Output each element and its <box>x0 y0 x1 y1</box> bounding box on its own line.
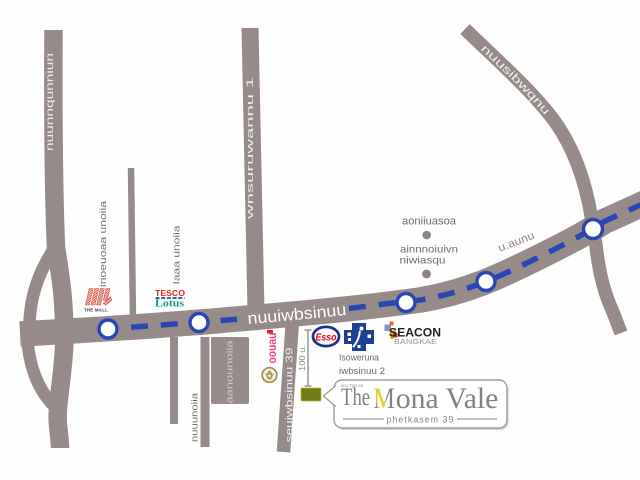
svg-text:inoeuoaa unoiia: inoeuoaa unoiia <box>98 200 109 287</box>
svg-text:TESCO: TESCO <box>155 288 185 298</box>
svg-text:Isoweruna: Isoweruna <box>339 353 379 363</box>
svg-text:ona Vale: ona Vale <box>396 382 499 415</box>
svg-text:100 u.: 100 u. <box>297 345 307 371</box>
svg-text:iwbsinuu 2: iwbsinuu 2 <box>339 366 385 376</box>
svg-text:nuuunoiia: nuuunoiia <box>190 392 201 442</box>
svg-text:aanounoiia: aanounoiia <box>225 341 235 404</box>
svg-text:wnsuruwannu 1: wnsuruwannu 1 <box>245 77 256 221</box>
svg-text:nuunnqunniun: nuunnqunniun <box>45 53 56 151</box>
svg-text:ainnnoiuivn: ainnnoiuivn <box>400 243 458 255</box>
svg-text:seuiwbsinuu 39: seuiwbsinuu 39 <box>284 347 296 442</box>
svg-text:Lotus: Lotus <box>155 299 184 310</box>
svg-text:Iaaa unoiia: Iaaa unoiia <box>172 225 183 285</box>
svg-text:The: The <box>341 382 370 410</box>
svg-text:niwiasqu: niwiasqu <box>400 255 446 267</box>
svg-text:BANGKAE: BANGKAE <box>394 339 437 346</box>
svg-text:THE MALL: THE MALL <box>84 308 108 313</box>
svg-text:phetkasem 39: phetkasem 39 <box>387 415 455 426</box>
svg-text:SEACON: SEACON <box>389 328 441 340</box>
svg-text:aoniiuasoa: aoniiuasoa <box>402 216 457 228</box>
svg-text:Esso: Esso <box>316 332 337 344</box>
svg-text:oouau: oouau <box>265 333 279 364</box>
